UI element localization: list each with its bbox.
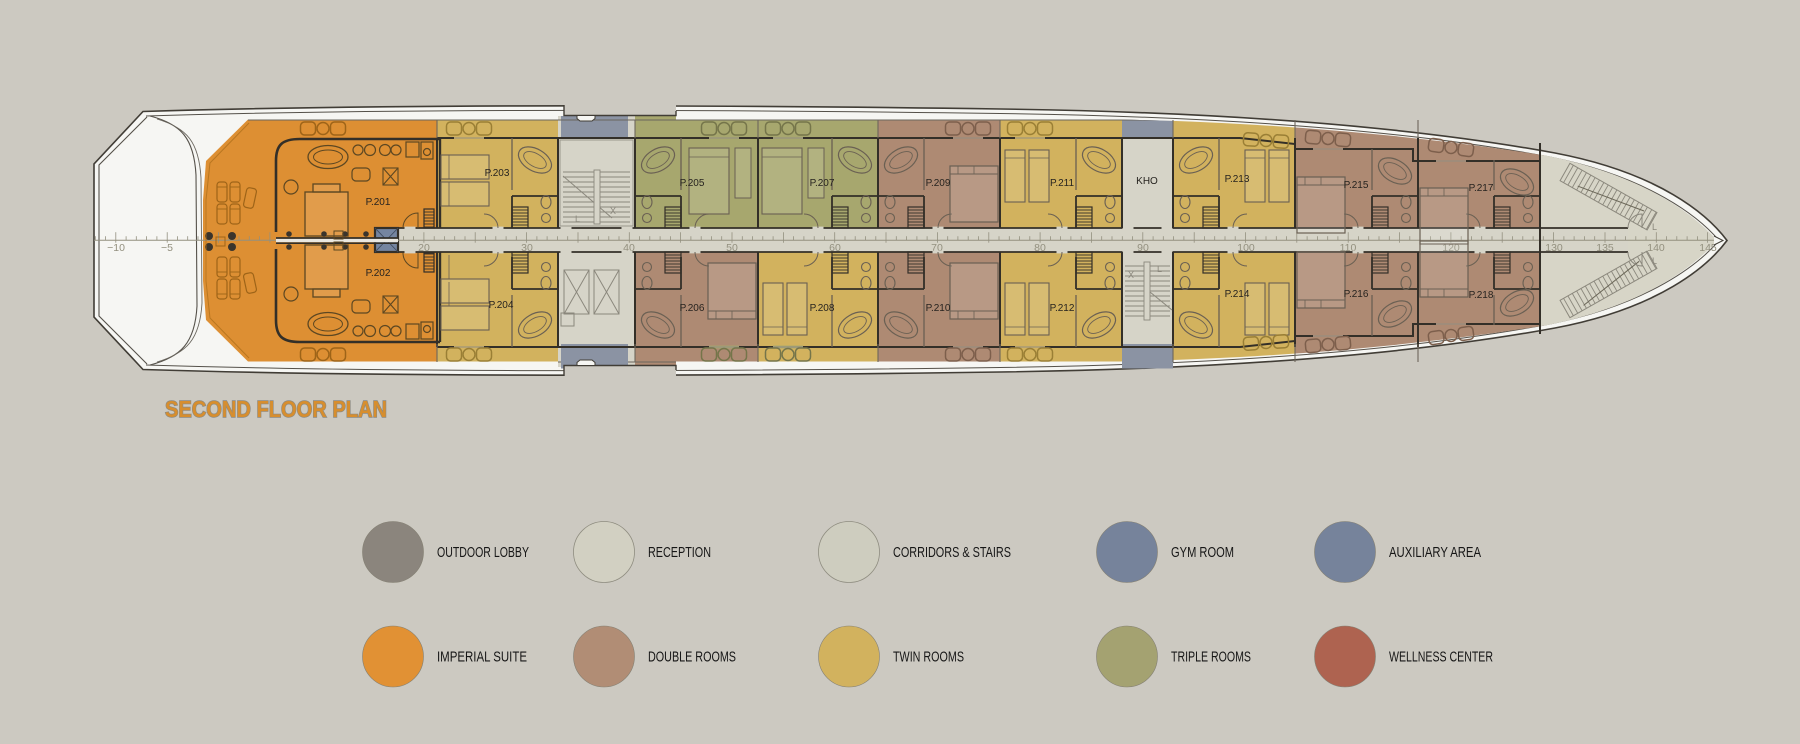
svg-text:P.209: P.209	[926, 178, 951, 189]
svg-text:GYM ROOM: GYM ROOM	[1171, 544, 1234, 561]
svg-text:−10: −10	[107, 242, 125, 254]
svg-text:TWIN ROOMS: TWIN ROOMS	[893, 649, 964, 666]
svg-text:L: L	[1652, 256, 1657, 266]
svg-text:X: X	[1128, 270, 1134, 280]
svg-text:P.205: P.205	[680, 178, 705, 189]
svg-text:X: X	[610, 206, 616, 216]
svg-text:L: L	[1157, 264, 1162, 274]
svg-text:AUXILIARY AREA: AUXILIARY AREA	[1389, 544, 1481, 561]
svg-text:L: L	[1652, 222, 1657, 232]
svg-text:130: 130	[1545, 242, 1563, 254]
svg-text:SECOND FLOOR PLAN: SECOND FLOOR PLAN	[165, 396, 387, 422]
svg-text:P.215: P.215	[1344, 180, 1369, 191]
svg-text:−5: −5	[161, 242, 173, 254]
svg-text:RECEPTION: RECEPTION	[648, 544, 711, 561]
svg-text:P.217: P.217	[1469, 183, 1494, 194]
svg-text:135: 135	[1596, 242, 1614, 254]
svg-text:50: 50	[726, 242, 738, 254]
svg-text:P.213: P.213	[1225, 174, 1250, 185]
svg-text:P.203: P.203	[485, 168, 510, 179]
svg-text:P.204: P.204	[489, 300, 514, 311]
svg-text:P.216: P.216	[1344, 289, 1369, 300]
svg-text:P.208: P.208	[810, 303, 835, 314]
svg-text:P.207: P.207	[810, 178, 835, 189]
svg-text:P.218: P.218	[1469, 290, 1494, 301]
svg-text:P.212: P.212	[1050, 303, 1075, 314]
svg-text:KHO: KHO	[1136, 176, 1158, 187]
svg-text:CORRIDORS & STAIRS: CORRIDORS & STAIRS	[893, 544, 1011, 561]
svg-text:P.201: P.201	[366, 197, 391, 208]
svg-text:OUTDOOR LOBBY: OUTDOOR LOBBY	[437, 544, 529, 561]
svg-text:P.214: P.214	[1225, 289, 1250, 300]
svg-text:140: 140	[1647, 242, 1665, 254]
svg-text:100: 100	[1237, 242, 1255, 254]
svg-text:80: 80	[1034, 242, 1046, 254]
svg-text:P.206: P.206	[680, 303, 705, 314]
svg-text:IMPERIAL SUITE: IMPERIAL SUITE	[437, 649, 527, 666]
svg-text:P.211: P.211	[1050, 178, 1075, 189]
svg-text:P.202: P.202	[366, 268, 391, 279]
svg-text:WELLNESS CENTER: WELLNESS CENTER	[1389, 649, 1493, 666]
svg-text:DOUBLE ROOMS: DOUBLE ROOMS	[648, 649, 736, 666]
svg-text:L: L	[575, 214, 580, 224]
svg-text:P.210: P.210	[926, 303, 951, 314]
svg-text:20: 20	[418, 242, 430, 254]
svg-text:TRIPLE ROOMS: TRIPLE ROOMS	[1171, 649, 1251, 666]
svg-text:90: 90	[1137, 242, 1149, 254]
